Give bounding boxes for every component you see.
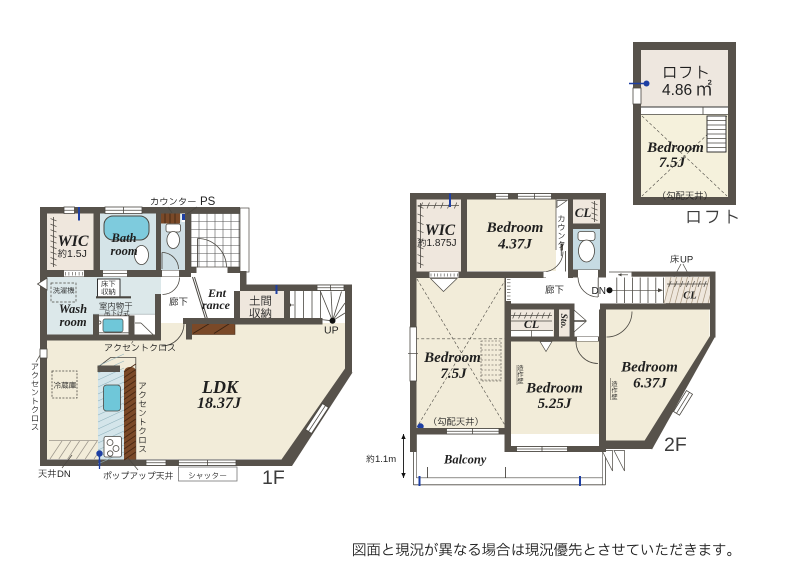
svg-text:1.5J: 1.5J xyxy=(67,248,87,260)
svg-text:18.37J: 18.37J xyxy=(197,395,242,412)
svg-text:DN: DN xyxy=(57,469,71,480)
svg-text:CL: CL xyxy=(524,317,539,331)
svg-text:1.875J: 1.875J xyxy=(427,238,457,249)
svg-text:Bedroom: Bedroom xyxy=(646,140,704,156)
svg-text:Bedroom: Bedroom xyxy=(620,360,678,376)
svg-text:6.37J: 6.37J xyxy=(633,376,667,392)
svg-text:5.25J: 5.25J xyxy=(538,396,572,412)
svg-text:CL: CL xyxy=(575,205,592,220)
svg-text:CL: CL xyxy=(683,291,696,302)
svg-text:4.86: 4.86 xyxy=(662,82,692,99)
svg-text:7.5J: 7.5J xyxy=(659,155,686,171)
svg-text:Bath: Bath xyxy=(110,231,136,245)
svg-text:Balcony: Balcony xyxy=(443,453,487,467)
svg-text:Bedroom: Bedroom xyxy=(423,350,481,366)
svg-text:7.5J: 7.5J xyxy=(440,366,467,382)
svg-text:room: room xyxy=(59,315,86,329)
svg-text:Bedroom: Bedroom xyxy=(525,381,583,397)
svg-text:LDK: LDK xyxy=(201,377,240,397)
svg-text:room: room xyxy=(110,244,137,258)
svg-text:UP: UP xyxy=(324,325,339,337)
svg-text:PS: PS xyxy=(200,196,216,208)
svg-text:Wash: Wash xyxy=(59,302,87,316)
svg-text:DN: DN xyxy=(592,286,606,297)
svg-text:UP: UP xyxy=(680,255,693,266)
svg-text:Bedroom: Bedroom xyxy=(486,220,544,236)
svg-text:2F: 2F xyxy=(664,434,687,456)
svg-text:rance: rance xyxy=(202,298,231,312)
svg-text:WIC: WIC xyxy=(425,222,456,239)
svg-text:1F: 1F xyxy=(262,467,285,489)
svg-text:4.37J: 4.37J xyxy=(497,237,532,253)
svg-text:1.1m: 1.1m xyxy=(375,454,396,465)
svg-text:Sto.: Sto. xyxy=(558,313,568,328)
